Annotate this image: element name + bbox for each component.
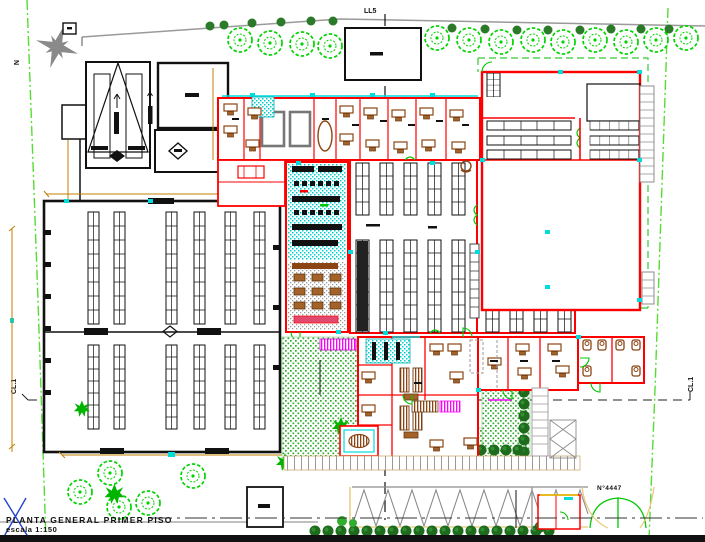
sidewalk-ticks: [284, 456, 580, 470]
building-right-workshops: [478, 58, 654, 310]
street-trees-top: [206, 17, 699, 59]
street-number-label: N°4447: [597, 484, 622, 492]
axis-label-top: LL5: [364, 8, 377, 15]
building-main-hall: [10, 198, 280, 454]
dim-tick-cyan: [168, 452, 175, 457]
axis-label-right: CL.1: [688, 377, 695, 392]
building-kitchen-cafeteria: [286, 161, 348, 341]
cad-plan-canvas: N LL5 CL.1 CL.1: [0, 0, 705, 542]
plan-marker-box: [63, 23, 76, 34]
building-chapel: [62, 62, 228, 201]
entry-gate-right: [532, 487, 654, 530]
guard-house: [247, 487, 283, 527]
building-top-center: [345, 28, 421, 80]
north-label: N: [12, 60, 19, 65]
site-plan-drawing: N LL5 CL.1 CL.1: [0, 0, 705, 542]
plan-title: PLANTA GENERAL PRIMER PISO: [6, 515, 173, 525]
sheet-bottom-border: [0, 535, 705, 542]
parking-stalls-column: [532, 388, 576, 458]
plan-scale: escala 1:150: [6, 525, 57, 534]
